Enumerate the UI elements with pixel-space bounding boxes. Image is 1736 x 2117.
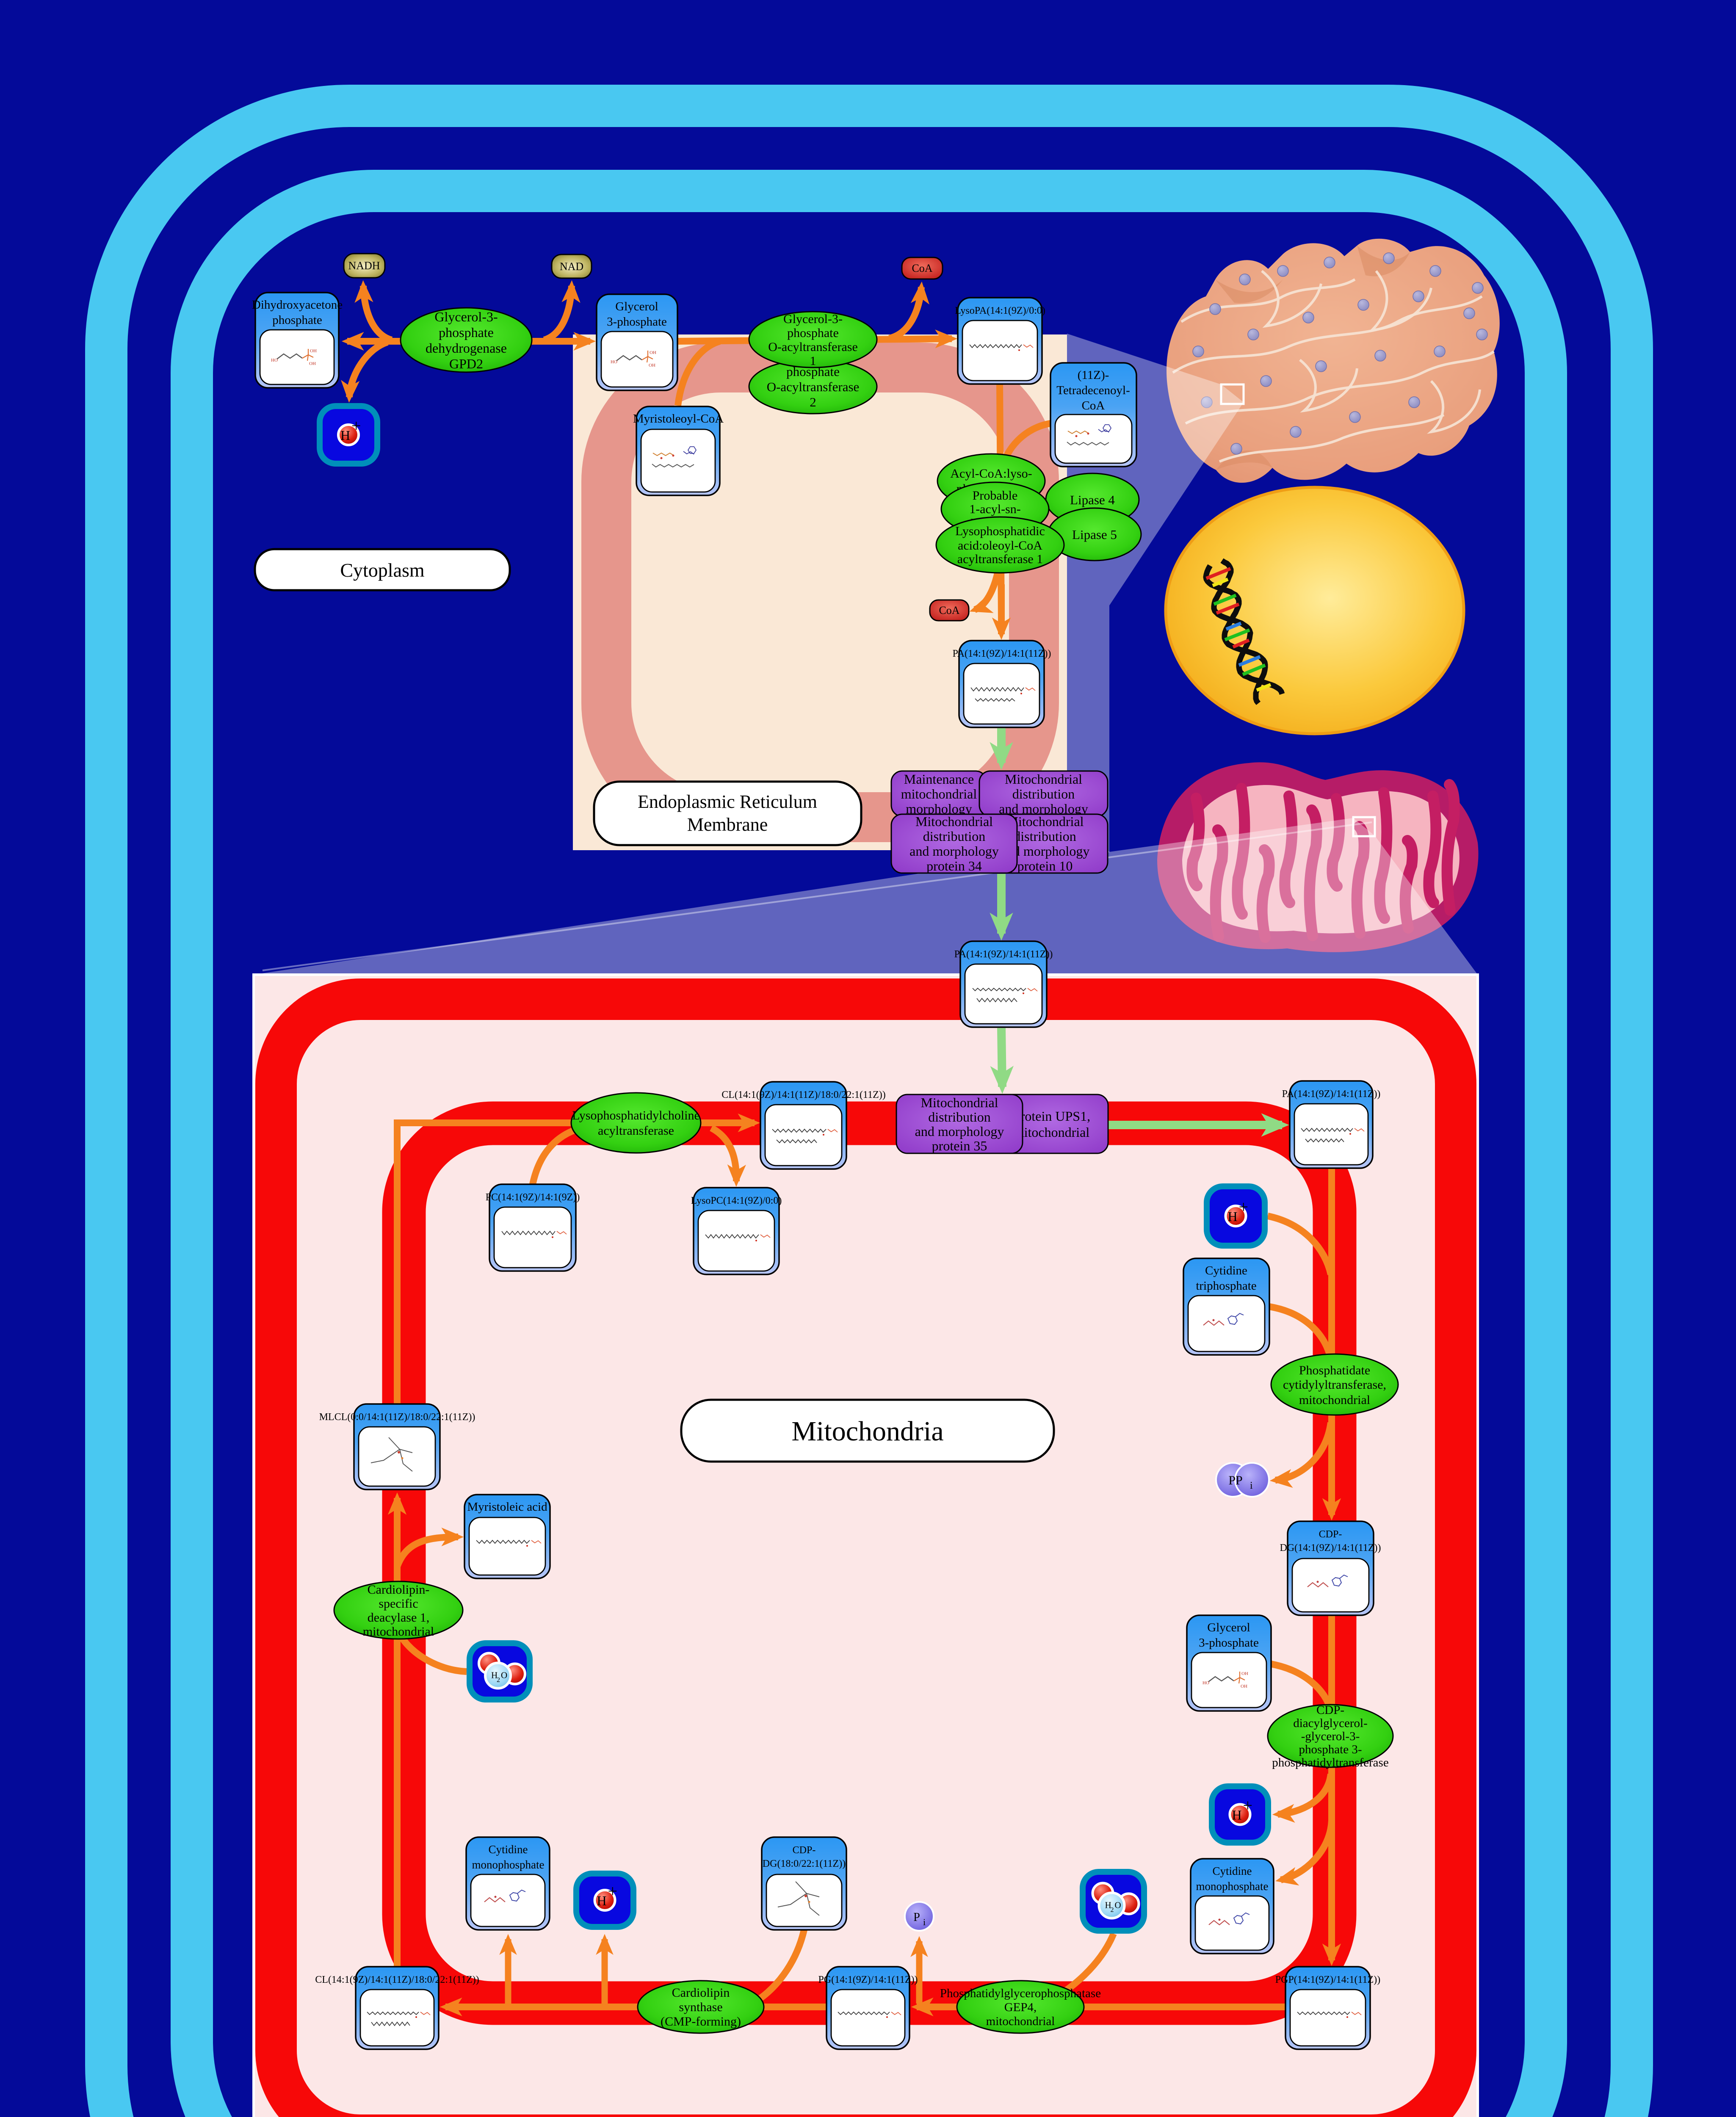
svg-text:GPD2: GPD2: [449, 356, 483, 371]
svg-text:protein 35: protein 35: [932, 1138, 987, 1153]
svg-text:+: +: [1243, 1796, 1253, 1815]
svg-text:PGP(14:1(9Z)/14:1(11Z)): PGP(14:1(9Z)/14:1(11Z)): [1275, 1974, 1380, 1985]
svg-text:H: H: [1228, 1209, 1238, 1224]
svg-text:2: 2: [1111, 1907, 1114, 1914]
svg-text:DG(14:1(9Z)/14:1(11Z)): DG(14:1(9Z)/14:1(11Z)): [1280, 1542, 1381, 1553]
svg-text:Mitochondria: Mitochondria: [791, 1416, 943, 1447]
svg-text:HO: HO: [1202, 1680, 1209, 1686]
svg-text:PA(14:1(9Z)/14:1(11Z)): PA(14:1(9Z)/14:1(11Z)): [1282, 1089, 1381, 1100]
svg-text:Probable: Probable: [973, 489, 1018, 503]
svg-text:OH: OH: [649, 363, 655, 368]
svg-text:LysoPC(14:1(9Z)/0:0): LysoPC(14:1(9Z)/0:0): [691, 1195, 782, 1206]
svg-text:CDP-: CDP-: [1319, 1529, 1342, 1540]
svg-text:cytidylyltransferase,: cytidylyltransferase,: [1283, 1378, 1386, 1392]
svg-text:Phosphatidate: Phosphatidate: [1299, 1363, 1370, 1377]
svg-text:Mitochondrial: Mitochondrial: [921, 1095, 998, 1110]
svg-text:CL(14:1(9Z)/14:1(11Z)/18:0/22:: CL(14:1(9Z)/14:1(11Z)/18:0/22:1(11Z)): [315, 1974, 479, 1985]
svg-text:specific: specific: [379, 1597, 418, 1611]
svg-text:distribution: distribution: [923, 829, 986, 844]
svg-text:mitochondrial: mitochondrial: [363, 1625, 434, 1639]
svg-text:Glycerol: Glycerol: [1207, 1621, 1250, 1634]
svg-text:O-acyltransferase: O-acyltransferase: [768, 340, 858, 354]
svg-text:Maintenance: Maintenance: [904, 771, 974, 787]
svg-text:Lysophosphatidylcholine: Lysophosphatidylcholine: [572, 1108, 700, 1122]
svg-text:GEP4,: GEP4,: [1004, 2001, 1037, 2014]
svg-text:monophosphate: monophosphate: [1196, 1880, 1269, 1893]
svg-text:PG(14:1(9Z)/14:1(11Z)): PG(14:1(9Z)/14:1(11Z)): [818, 1974, 918, 1985]
svg-text:distribution: distribution: [1012, 786, 1075, 801]
svg-text:+: +: [351, 416, 361, 435]
svg-text:Myristoleoyl-CoA: Myristoleoyl-CoA: [633, 412, 724, 426]
svg-text:Mitochondrial: Mitochondrial: [1006, 814, 1084, 829]
svg-text:OH: OH: [1241, 1684, 1247, 1689]
svg-text:+: +: [1239, 1197, 1249, 1216]
svg-text:phosphatidyltransferase: phosphatidyltransferase: [1272, 1756, 1388, 1769]
svg-text:and morphology: and morphology: [915, 1124, 1004, 1139]
svg-text:triphosphate: triphosphate: [1196, 1279, 1256, 1293]
svg-text:acid:oleoyl-CoA: acid:oleoyl-CoA: [958, 539, 1042, 553]
svg-text:+: +: [608, 1882, 618, 1901]
svg-text:H: H: [340, 428, 350, 443]
svg-text:phosphate: phosphate: [272, 313, 322, 327]
svg-text:monophosphate: monophosphate: [472, 1858, 545, 1871]
svg-text:Lipase 5: Lipase 5: [1072, 527, 1117, 542]
svg-text:phosphate: phosphate: [787, 326, 839, 340]
svg-text:HO: HO: [611, 359, 617, 365]
svg-text:Cardiolipin: Cardiolipin: [672, 1986, 730, 2000]
svg-text:OH: OH: [309, 361, 316, 366]
svg-text:mitochondrial: mitochondrial: [1014, 1125, 1090, 1140]
svg-text:1: 1: [810, 354, 816, 368]
svg-text:deacylase 1,: deacylase 1,: [368, 1611, 430, 1625]
svg-text:mitochondrial: mitochondrial: [986, 2015, 1055, 2028]
svg-text:Cytidine: Cytidine: [489, 1843, 528, 1856]
svg-text:OH: OH: [1241, 1671, 1248, 1676]
svg-text:3-phosphate: 3-phosphate: [607, 315, 667, 329]
svg-text:NAD: NAD: [560, 260, 583, 273]
svg-text:Tetradecenoyl-: Tetradecenoyl-: [1056, 384, 1130, 397]
svg-text:3-phosphate: 3-phosphate: [1199, 1636, 1259, 1650]
svg-text:HO: HO: [271, 358, 278, 363]
svg-text:i: i: [923, 1917, 926, 1927]
svg-text:acyltransferase 1: acyltransferase 1: [957, 552, 1043, 566]
svg-text:phosphate 3-: phosphate 3-: [1299, 1743, 1362, 1756]
svg-text:O: O: [1115, 1900, 1121, 1910]
svg-text:OH: OH: [650, 350, 656, 355]
svg-text:1-acyl-sn-: 1-acyl-sn-: [969, 502, 1021, 516]
svg-text:NADH: NADH: [348, 260, 380, 272]
svg-text:distribution: distribution: [928, 1109, 991, 1125]
svg-text:Glycerol-3-: Glycerol-3-: [783, 312, 843, 326]
svg-text:protein 10: protein 10: [1017, 858, 1073, 873]
svg-text:Endoplasmic Reticulum: Endoplasmic Reticulum: [638, 791, 817, 812]
svg-text:Glycerol: Glycerol: [615, 300, 658, 313]
svg-text:LysoPA(14:1(9Z)/0:0): LysoPA(14:1(9Z)/0:0): [955, 305, 1045, 316]
svg-text:dehydrogenase: dehydrogenase: [426, 340, 507, 356]
svg-text:Myristoleic acid: Myristoleic acid: [467, 1500, 547, 1514]
svg-text:Mitochondrial: Mitochondrial: [1005, 771, 1082, 787]
svg-text:Acyl-CoA:lyso-: Acyl-CoA:lyso-: [950, 467, 1032, 481]
svg-text:O-acyltransferase: O-acyltransferase: [767, 379, 860, 394]
svg-text:PP: PP: [1228, 1473, 1242, 1487]
svg-text:-glycerol-3-: -glycerol-3-: [1301, 1730, 1360, 1743]
svg-text:PC(14:1(9Z)/14:1(9Z)): PC(14:1(9Z)/14:1(9Z)): [486, 1192, 580, 1203]
svg-text:PA(14:1(9Z)/14:1(11Z)): PA(14:1(9Z)/14:1(11Z)): [953, 648, 1051, 659]
svg-text:Cytoplasm: Cytoplasm: [340, 559, 425, 581]
svg-text:Lysophosphatidic: Lysophosphatidic: [955, 524, 1045, 538]
svg-text:acyltransferase: acyltransferase: [598, 1124, 674, 1138]
svg-text:(CMP-forming): (CMP-forming): [661, 2015, 741, 2029]
svg-text:CDP-: CDP-: [1316, 1703, 1344, 1717]
svg-text:(11Z)-: (11Z)-: [1078, 368, 1109, 382]
svg-text:Protein UPS1,: Protein UPS1,: [1013, 1108, 1090, 1124]
svg-text:CDP-: CDP-: [793, 1845, 816, 1856]
svg-text:synthase: synthase: [679, 2000, 722, 2014]
svg-text:Membrane: Membrane: [687, 814, 768, 835]
svg-text:P: P: [913, 1911, 920, 1924]
svg-text:mitochondrial: mitochondrial: [901, 786, 977, 801]
svg-text:OH: OH: [310, 348, 317, 354]
svg-text:Cytidine: Cytidine: [1213, 1865, 1252, 1877]
svg-text:PA(14:1(9Z)/14:1(11Z)): PA(14:1(9Z)/14:1(11Z)): [954, 949, 1053, 960]
svg-text:MLCL(0:0/14:1(11Z)/18:0/22:1(1: MLCL(0:0/14:1(11Z)/18:0/22:1(11Z)): [319, 1412, 475, 1423]
svg-text:CoA: CoA: [939, 604, 959, 616]
svg-text:DG(18:0/22:1(11Z)): DG(18:0/22:1(11Z)): [763, 1858, 846, 1869]
svg-text:CL(14:1(9Z)/14:1(11Z)/18:0/22:: CL(14:1(9Z)/14:1(11Z)/18:0/22:1(11Z)): [721, 1089, 885, 1100]
svg-text:Dihydroxyacetone: Dihydroxyacetone: [252, 298, 343, 312]
svg-text:Phosphatidylglycerophosphatase: Phosphatidylglycerophosphatase: [940, 1987, 1101, 2000]
svg-text:mitochondrial: mitochondrial: [1299, 1393, 1370, 1407]
svg-text:H: H: [597, 1893, 607, 1908]
svg-text:protein 34: protein 34: [926, 858, 982, 873]
svg-text:diacylglycerol-: diacylglycerol-: [1293, 1716, 1368, 1730]
svg-text:2: 2: [810, 395, 816, 409]
svg-text:Mitochondrial: Mitochondrial: [915, 814, 993, 829]
svg-text:CoA: CoA: [1082, 399, 1105, 412]
svg-text:O: O: [501, 1670, 507, 1680]
svg-text:Cardiolipin-: Cardiolipin-: [368, 1583, 430, 1597]
svg-text:Glycerol-3-: Glycerol-3-: [434, 309, 498, 324]
svg-text:and morphology: and morphology: [909, 843, 999, 859]
svg-text:distribution: distribution: [1014, 829, 1076, 844]
svg-text:phosphate: phosphate: [439, 325, 494, 340]
svg-text:Lipase 4: Lipase 4: [1070, 492, 1115, 507]
svg-text:2: 2: [497, 1677, 500, 1684]
svg-text:H: H: [1232, 1807, 1242, 1823]
svg-text:CoA: CoA: [912, 262, 932, 274]
svg-text:Cytidine: Cytidine: [1205, 1264, 1247, 1277]
svg-text:i: i: [1250, 1480, 1253, 1491]
